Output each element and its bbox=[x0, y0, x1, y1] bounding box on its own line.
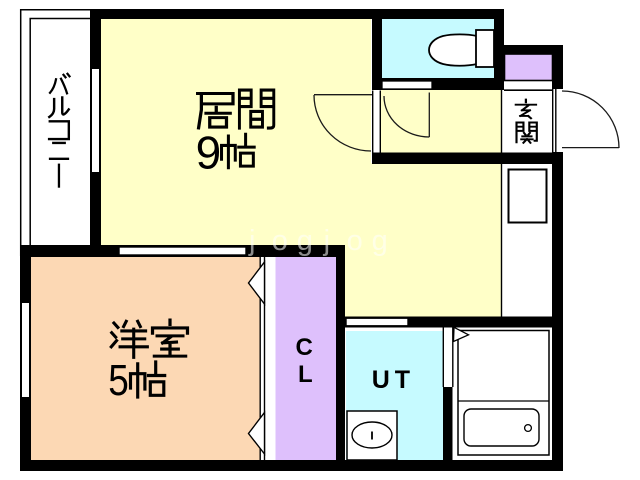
svg-text:C: C bbox=[296, 334, 313, 361]
svg-text:g: g bbox=[372, 225, 388, 257]
svg-text:j: j bbox=[323, 225, 330, 257]
svg-text:o: o bbox=[347, 225, 363, 257]
svg-text:T: T bbox=[395, 366, 410, 394]
svg-text:5: 5 bbox=[108, 355, 129, 405]
svg-text:g: g bbox=[297, 225, 313, 257]
svg-text:j: j bbox=[248, 225, 255, 257]
svg-text:L: L bbox=[298, 361, 313, 388]
svg-text:U: U bbox=[372, 366, 390, 394]
svg-text:9: 9 bbox=[196, 127, 222, 179]
svg-text:o: o bbox=[272, 225, 288, 257]
